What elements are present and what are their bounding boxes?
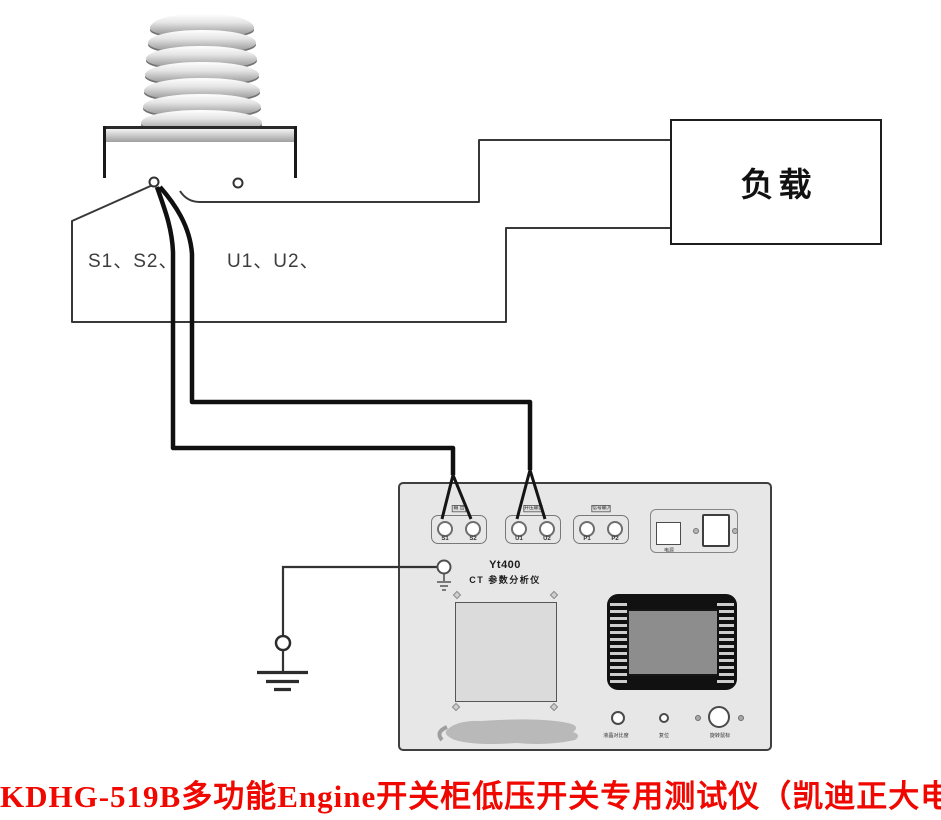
screw-icon [738,715,744,721]
ct-secondary-terminals-label: S1、S2、 [88,246,178,273]
terminal-p1 [579,521,595,537]
terminal-u2-label: U2 [540,536,554,542]
lcd-screen-frame [607,594,737,690]
terminal-u1-label: U1 [512,536,526,542]
ct-bushing [141,14,262,133]
contrast-button [611,711,625,725]
reset-button [659,713,669,723]
screw-icon [550,703,558,711]
lcd-display [627,609,719,676]
ct-terminal-hole-left [150,178,159,187]
ground-plug [276,636,290,650]
terminal-u2 [539,521,555,537]
ct-primary-terminals-label: U1、U2、 [227,246,320,273]
ct-terminal-hole-right [234,179,243,188]
terminal-p2-label: P2 [608,536,622,542]
power-socket [702,514,730,547]
earth-symbol-icon [257,673,308,690]
terminal-u1 [511,521,527,537]
load-box: 负载 [670,119,882,245]
terminal-s1 [437,521,453,537]
screw-icon [452,703,460,711]
printer-panel [455,602,557,702]
test-lead-s [157,187,453,475]
screw-icon [732,528,738,534]
terminal-s2 [465,521,481,537]
ct-body-left-edge [103,126,106,178]
test-lead-u [160,187,530,470]
rotary-knob [708,706,730,728]
terminal-p2 [607,521,623,537]
instrument-subtitle: CT 参数分析仪 [448,573,562,586]
vent-slats-left [610,599,627,685]
ct-flange [103,126,297,142]
instrument-brand: Yt400 [460,559,550,571]
power-label: 电源 [655,546,684,553]
screw-icon [453,591,461,599]
power-switch [656,522,681,545]
screw-icon [550,591,558,599]
vent-slats-right [717,599,734,685]
caption: KDHG-519B多功能Engine开关柜低压开关专用测试仪（凯迪正大电气） [0,771,941,816]
terminal-s2-label: S2 [466,536,480,542]
power-module: 电源 [650,509,738,553]
terminal-group-p-tag: 信号输入 [591,505,610,512]
load-label: 负载 [736,158,817,206]
ct-body-right-edge [294,126,297,178]
reset-button-label: 复位 [647,731,681,739]
instrument-panel: 输 出 S1 S2 升压输出 U1 U2 信号输入 P1 P2 电源 Yt400… [398,482,772,751]
screw-icon [695,715,701,721]
terminal-group-u-tag: 升压输出 [523,505,542,512]
screw-icon [693,528,699,534]
load-wire-top [180,140,670,202]
knob-label: 旋转鼠标 [695,731,746,739]
contrast-button-label: 液晶对比度 [591,731,642,739]
terminal-s1-label: S1 [438,536,452,542]
terminal-p1-label: P1 [580,536,594,542]
diagram-stage: S1、S2、 U1、U2、 负载 输 出 S1 S2 升压输出 U1 U2 信号… [0,0,941,820]
terminal-group-s-tag: 输 出 [452,505,466,512]
